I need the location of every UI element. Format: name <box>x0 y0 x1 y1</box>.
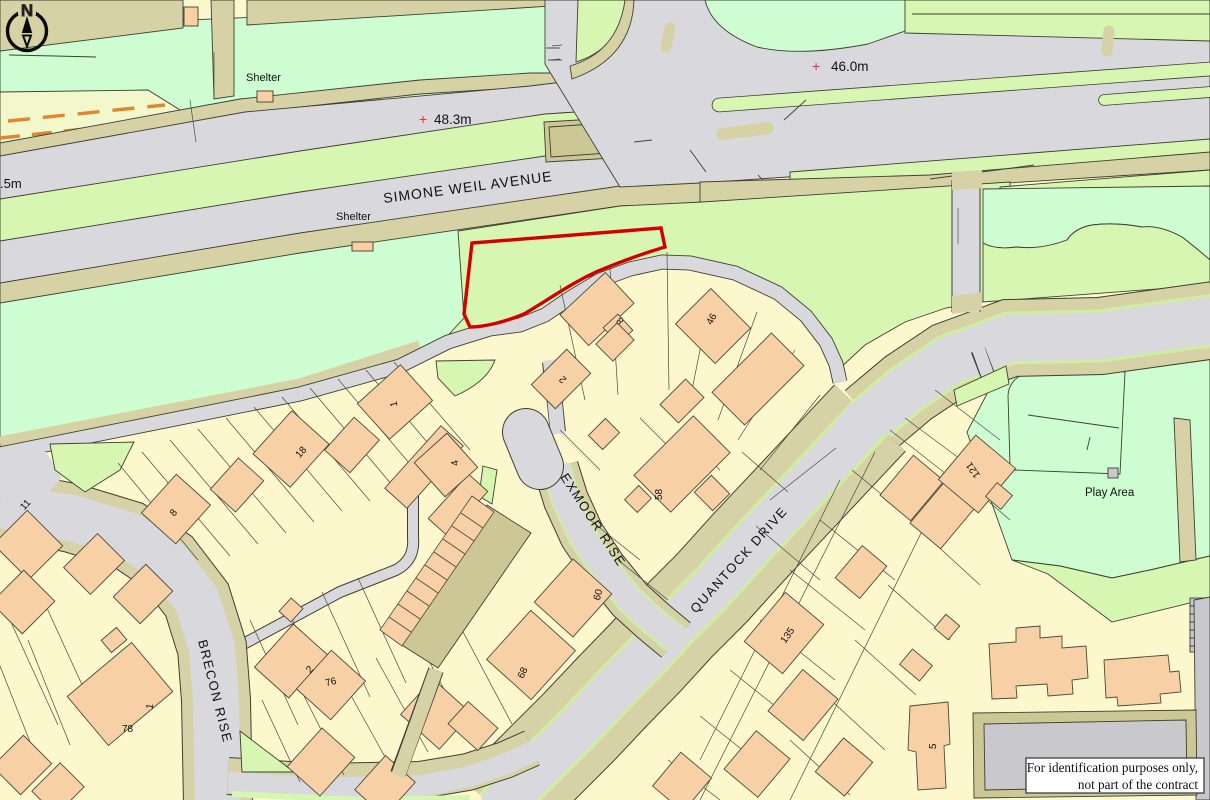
svg-text:.5m: .5m <box>0 176 22 191</box>
svg-text:+: + <box>419 111 427 127</box>
svg-text:+: + <box>812 58 820 74</box>
svg-text:48.3m: 48.3m <box>434 112 472 127</box>
svg-text:not part of the contract: not part of the contract <box>1078 777 1198 792</box>
svg-text:78: 78 <box>122 724 134 735</box>
svg-text:Play Area: Play Area <box>1085 487 1135 499</box>
svg-text:For identification purposes on: For identification purposes only, <box>1027 760 1198 775</box>
svg-text:46.0m: 46.0m <box>831 59 869 74</box>
svg-text:Shelter: Shelter <box>336 211 371 223</box>
svg-text:Shelter: Shelter <box>246 72 281 84</box>
svg-text:58: 58 <box>654 488 665 500</box>
